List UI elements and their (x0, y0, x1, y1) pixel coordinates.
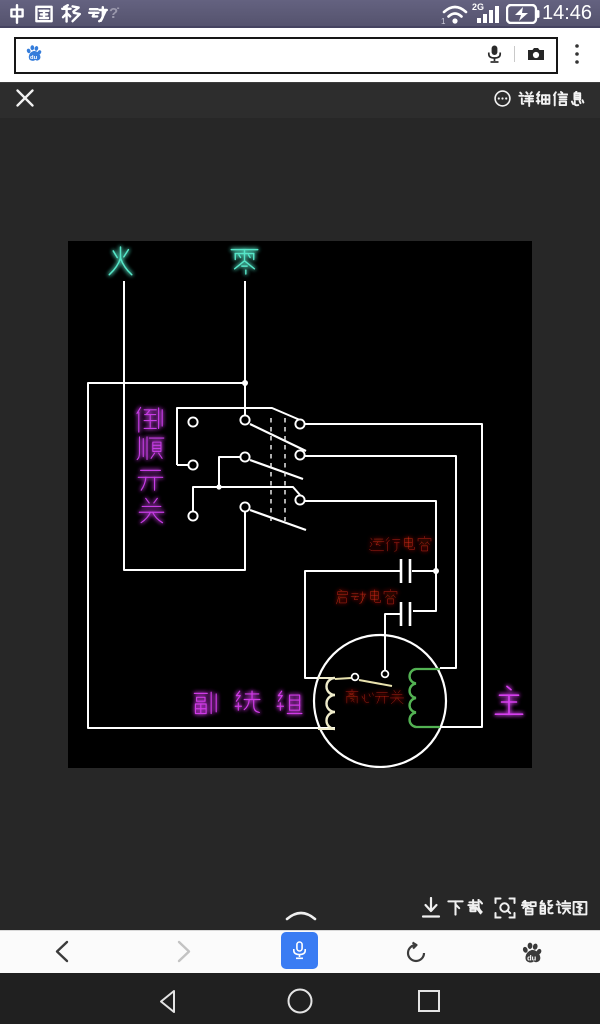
svg-text:du: du (30, 55, 38, 61)
svg-text:2G: 2G (472, 2, 484, 12)
svg-text:du: du (527, 953, 537, 962)
svg-text:1: 1 (441, 17, 446, 25)
